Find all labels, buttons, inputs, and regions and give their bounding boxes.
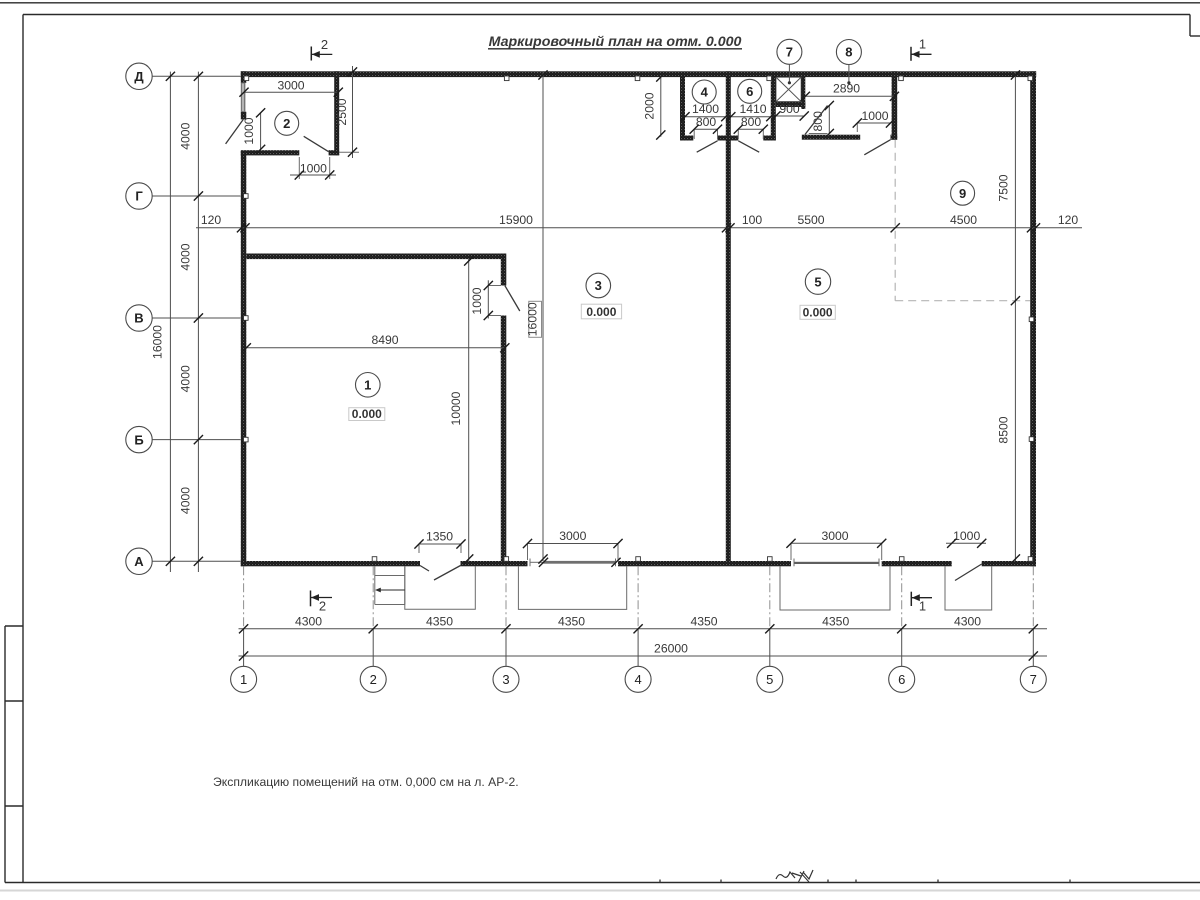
svg-text:8500: 8500 [997, 416, 1011, 443]
svg-text:800: 800 [696, 115, 717, 129]
svg-text:100: 100 [742, 213, 763, 227]
svg-text:7: 7 [786, 44, 793, 59]
svg-text:4300: 4300 [954, 614, 981, 628]
svg-text:3: 3 [502, 672, 509, 687]
svg-text:1: 1 [919, 599, 926, 614]
svg-text:10000: 10000 [449, 391, 463, 425]
svg-text:0.000: 0.000 [352, 407, 382, 421]
svg-text:3000: 3000 [559, 529, 586, 543]
svg-text:8490: 8490 [371, 333, 398, 347]
svg-text:800: 800 [741, 115, 762, 129]
svg-text:9: 9 [959, 186, 966, 201]
svg-text:2890: 2890 [833, 82, 860, 96]
svg-text:2: 2 [319, 599, 326, 614]
svg-text:2: 2 [283, 116, 290, 131]
svg-text:4: 4 [634, 672, 641, 687]
svg-text:1: 1 [364, 377, 371, 392]
svg-text:3000: 3000 [821, 529, 848, 543]
svg-text:В: В [134, 311, 143, 326]
svg-text:26000: 26000 [654, 642, 688, 656]
svg-text:4000: 4000 [179, 487, 193, 514]
svg-text:Маркировочный план на отм. 0.0: Маркировочный план на отм. 0.000 [489, 34, 742, 50]
svg-text:Д: Д [134, 69, 144, 84]
svg-text:2: 2 [370, 672, 377, 687]
svg-text:4300: 4300 [295, 614, 322, 628]
svg-text:4350: 4350 [690, 614, 717, 628]
svg-text:Г: Г [135, 189, 143, 204]
svg-text:7500: 7500 [997, 174, 1011, 201]
svg-text:6: 6 [898, 672, 905, 687]
svg-text:3: 3 [595, 278, 602, 293]
svg-text:120: 120 [201, 213, 222, 227]
svg-text:Экспликацию помещений на отм.: Экспликацию помещений на отм. 0,000 см н… [213, 775, 519, 789]
svg-text:4000: 4000 [179, 365, 193, 392]
svg-text:900: 900 [779, 102, 800, 116]
svg-text:4350: 4350 [426, 614, 453, 628]
svg-text:4: 4 [701, 85, 709, 100]
svg-text:1000: 1000 [300, 162, 327, 176]
svg-text:1410: 1410 [739, 102, 766, 116]
svg-text:1000: 1000 [470, 287, 484, 314]
svg-text:2000: 2000 [642, 92, 656, 119]
svg-text:2: 2 [321, 37, 328, 52]
svg-text:800: 800 [811, 111, 825, 132]
svg-text:7: 7 [1030, 672, 1037, 687]
svg-text:1000: 1000 [242, 117, 256, 144]
svg-text:1: 1 [240, 672, 247, 687]
svg-text:0.000: 0.000 [586, 305, 616, 319]
svg-text:1000: 1000 [953, 529, 980, 543]
svg-text:4350: 4350 [558, 614, 585, 628]
svg-text:16000: 16000 [526, 302, 540, 336]
svg-text:4000: 4000 [179, 122, 193, 149]
svg-text:1: 1 [919, 37, 926, 52]
svg-text:15900: 15900 [499, 213, 533, 227]
svg-text:4000: 4000 [179, 243, 193, 270]
svg-text:8: 8 [845, 45, 852, 60]
svg-text:16000: 16000 [151, 325, 165, 359]
svg-text:0.000: 0.000 [803, 306, 833, 320]
svg-text:4350: 4350 [822, 614, 849, 628]
svg-text:5: 5 [814, 274, 821, 289]
svg-text:3000: 3000 [277, 79, 304, 93]
svg-text:5: 5 [766, 672, 773, 687]
svg-text:2500: 2500 [335, 98, 349, 125]
svg-text:4500: 4500 [950, 213, 977, 227]
svg-text:120: 120 [1058, 213, 1079, 227]
svg-text:5500: 5500 [797, 213, 824, 227]
svg-text:6: 6 [746, 84, 753, 99]
svg-text:1350: 1350 [426, 530, 453, 544]
svg-text:А: А [134, 554, 144, 569]
svg-text:Б: Б [134, 432, 143, 447]
svg-text:1000: 1000 [861, 109, 888, 123]
